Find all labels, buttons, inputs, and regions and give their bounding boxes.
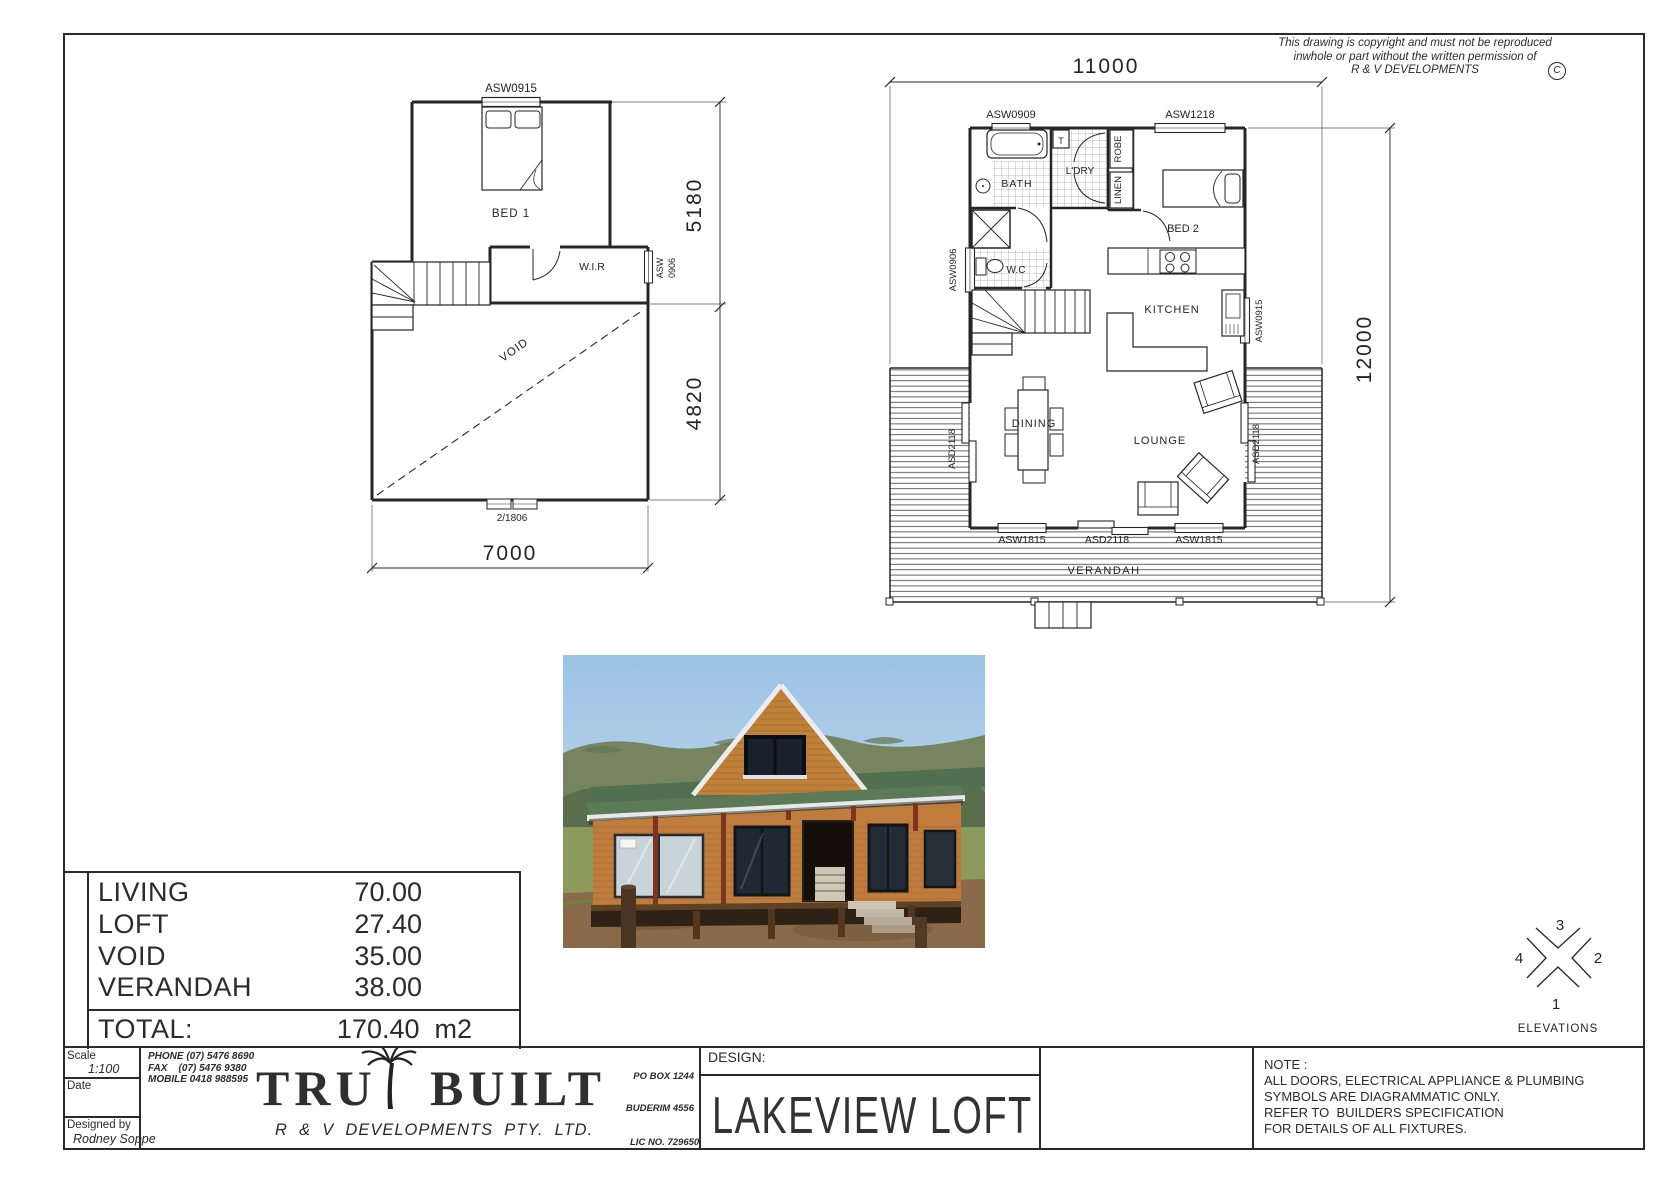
design-name: LAKEVIEW LOFT [712, 1086, 1033, 1146]
company-name: R & V DEVELOPMENTS PTY. LTD. [275, 1121, 593, 1139]
logo-word-tru: TRU [256, 1060, 377, 1116]
note-line: SYMBOLS ARE DIAGRAMMATIC ONLY. [1264, 1089, 1585, 1105]
lounge-armchair-corner [1177, 453, 1228, 504]
lounge-sofa [1138, 482, 1178, 515]
robe-label: ROBE [1113, 136, 1124, 163]
loft-window-asw0915 [482, 98, 540, 107]
fridge [1222, 290, 1244, 336]
bed2-bed [1163, 170, 1243, 207]
compass-2: 2 [1594, 950, 1602, 967]
note-line: NOTE : [1264, 1057, 1585, 1073]
loft-dim-lower: 4820 [683, 376, 706, 431]
window-asw1815-right-label: ASW1815 [1175, 534, 1222, 546]
house-photo [563, 655, 985, 948]
design-label: DESIGN: [708, 1050, 766, 1066]
tub-label: T [1058, 136, 1064, 146]
window-asw0906-label: ASW0906 [948, 249, 959, 292]
po-box-line2: BUDERIM 4556 [590, 1104, 694, 1115]
ground-dim-width: 11000 [1073, 55, 1140, 78]
po-box: PO BOX 1244 BUDERIM 4556 [590, 1051, 694, 1135]
linen-label: LINEN [1113, 176, 1124, 204]
plans-linework: ASW0915 BED 1 W.I.R ASW 0906 VOID 2/1806… [0, 0, 1670, 1200]
photo-loft-window [743, 737, 807, 779]
area-row-label: LOFT [98, 909, 169, 940]
loft-window-asw0906 [645, 251, 653, 283]
loft-stairs [372, 262, 490, 330]
note-line: ALL DOORS, ELECTRICAL APPLIANCE & PLUMBI… [1264, 1073, 1585, 1089]
compass-west-chevron [1527, 938, 1546, 978]
window-asw0915-right-label: ASW0915 [1254, 300, 1265, 343]
loft-bed [482, 107, 542, 190]
laundry-label: L'DRY [1066, 166, 1095, 177]
loft-window-right-label2: 0906 [667, 258, 677, 278]
note-line: REFER TO BUILDERS SPECIFICATION [1264, 1105, 1585, 1121]
verandah-steps [1035, 602, 1091, 628]
area-row-value: 27.40 [300, 909, 422, 940]
window-asw1218-label: ASW1218 [1165, 109, 1215, 121]
bed2-label: BED 2 [1167, 223, 1199, 235]
dining-set [1005, 377, 1063, 483]
area-total-value: 170.40 m2 [300, 1014, 472, 1045]
ground-stairs [972, 290, 1090, 355]
verandah-label: VERANDAH [1067, 565, 1140, 577]
photo-foreground-post-right [915, 917, 927, 948]
compass-1: 1 [1552, 996, 1560, 1013]
fax-number: FAX (07) 5476 9380 [148, 1063, 246, 1075]
designer-name: Rodney Soppe [73, 1132, 156, 1146]
compass-3: 3 [1556, 917, 1564, 934]
ground-plan: 11000 12000 ASW0909 ASW1218 BATH T L'DRY… [885, 55, 1395, 628]
area-row-value: 35.00 [300, 941, 422, 972]
palm-tree-icon [360, 1047, 418, 1111]
window-asw1815-left-label: ASW1815 [998, 534, 1045, 546]
loft-bed1-label: BED 1 [492, 208, 530, 220]
dining-label: DINING [1012, 418, 1057, 430]
door-asd2118-left-label: ASD2118 [947, 429, 958, 469]
kitchen-island [1107, 313, 1207, 371]
scale-value: 1:100 [88, 1062, 119, 1076]
area-row-value: 70.00 [300, 877, 422, 908]
loft-void-diagonal [377, 310, 643, 495]
designed-by-label: Designed by [67, 1119, 131, 1132]
area-row-label: LIVING [98, 877, 190, 908]
note-line: FOR DETAILS OF ALL FIXTURES. [1264, 1121, 1585, 1137]
mobile-number: MOBILE 0418 988595 [148, 1074, 248, 1086]
date-label: Date [67, 1080, 91, 1093]
area-row-value: 38.00 [300, 972, 422, 1003]
shower [972, 210, 1010, 248]
po-box-line1: PO BOX 1244 [590, 1072, 694, 1083]
compass-south-chevron [1537, 967, 1579, 987]
logo-word-built: BUILT [430, 1060, 606, 1116]
loft-window-top-label: ASW0915 [485, 83, 537, 95]
note-block: NOTE : ALL DOORS, ELECTRICAL APPLIANCE &… [1264, 1057, 1585, 1137]
loft-wir-door [533, 249, 560, 280]
compass-east-chevron [1572, 938, 1591, 978]
area-total-label: TOTAL: [98, 1014, 193, 1045]
kitchen-label: KITCHEN [1144, 304, 1199, 316]
lounge-armchair-right [1194, 371, 1242, 414]
loft-dimensions [367, 97, 726, 573]
kitchen-bench [1108, 248, 1245, 274]
phone-number: PHONE (07) 5476 8690 [148, 1051, 254, 1063]
photo-foreground-post-left [621, 887, 636, 948]
ground-dim-height: 12000 [1353, 315, 1376, 383]
drawing-sheet: This drawing is copyright and must not b… [0, 0, 1670, 1200]
loft-plan: ASW0915 BED 1 W.I.R ASW 0906 VOID 2/1806… [367, 83, 726, 573]
photo-doorway [803, 821, 853, 901]
window-asw0909-label: ASW0909 [986, 109, 1036, 121]
area-row-label: VERANDAH [98, 972, 252, 1003]
licence-number: LIC NO. 729650 [630, 1138, 699, 1149]
elevations-compass: 3 2 1 4 ELEVATIONS [1515, 917, 1602, 1035]
wc-label: W.C [1007, 265, 1026, 276]
bath-label: BATH [1001, 178, 1032, 190]
scale-label: Scale [67, 1050, 96, 1063]
loft-wir-label: W.I.R [579, 261, 605, 273]
loft-dim-width: 7000 [483, 542, 538, 565]
loft-bottom-door-label: 2/1806 [497, 513, 528, 524]
area-row-label: VOID [98, 941, 166, 972]
elevations-label: ELEVATIONS [1518, 1023, 1599, 1035]
door-asd2118-bottom-label: ASD2118 [1085, 534, 1129, 546]
loft-dim-upper: 5180 [683, 178, 706, 233]
lounge-label: LOUNGE [1134, 435, 1186, 447]
basin [976, 179, 990, 193]
door-asd2118-right-label: ASD2118 [1251, 424, 1262, 464]
photo-center-window [735, 827, 789, 895]
bathtub [987, 130, 1047, 158]
loft-window-right-label1: ASW [655, 257, 665, 278]
loft-void-label: VOID [498, 336, 531, 364]
compass-4: 4 [1515, 950, 1523, 967]
